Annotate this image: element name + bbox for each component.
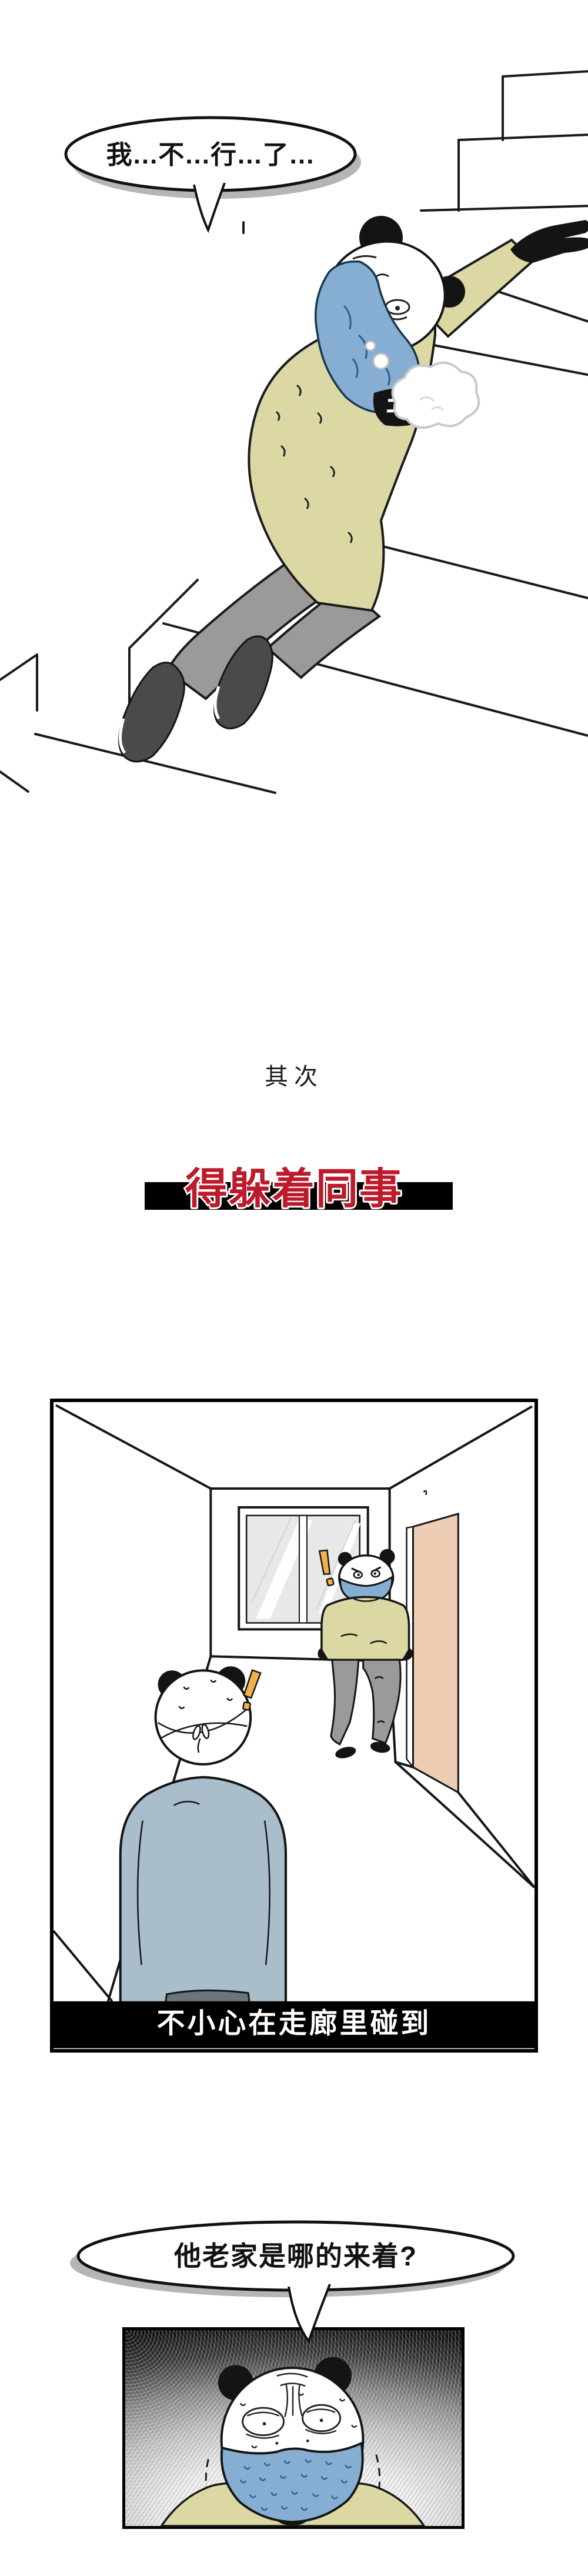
stair-tread-line	[503, 71, 588, 76]
panel-stairs: 我...不...行...了...	[0, 53, 588, 823]
floor-edge-right-long	[396, 1762, 534, 1887]
panel-hallway: 不小心在走廊里碰到	[50, 1399, 538, 2053]
speech-bubble-stairs: 我...不...行...了...	[66, 118, 361, 230]
comic-page: 我...不...行...了... 其次 得躲着同事	[0, 0, 588, 2576]
pupil-right	[320, 2418, 323, 2422]
panda-paw-up	[510, 220, 588, 263]
exclamation-dot	[326, 1578, 333, 1586]
door	[407, 1514, 459, 1793]
stair-tread-line	[459, 135, 588, 140]
pupil-left	[263, 2422, 266, 2425]
hallway-caption-text: 不小心在走廊里碰到	[157, 2008, 432, 2040]
hallway-scene: 不小心在走廊里碰到	[54, 1402, 534, 2049]
ceiling-line-left	[56, 1405, 211, 1489]
breath-puff-mid	[373, 353, 389, 369]
stair-tread-line	[421, 206, 588, 211]
bubble-stairs-text: 我...不...行...了...	[106, 141, 315, 169]
wall-squiggle	[423, 1491, 426, 1495]
ceiling-line-right	[390, 1406, 532, 1489]
sweater	[121, 1777, 286, 2003]
headline-text: 得躲着同事	[0, 1154, 588, 1216]
bubble-hometown-text: 他老家是哪的来着?	[173, 2241, 417, 2271]
exclamation-bar	[243, 1670, 260, 1699]
shoe-left	[334, 1745, 357, 1760]
stair-nose-line	[0, 772, 28, 792]
speech-bubble-hometown: 他老家是哪的来着?	[56, 2200, 544, 2364]
floor-edge-left2	[54, 1931, 112, 2001]
pants-leg-right	[363, 1660, 400, 1743]
pupil-left	[358, 1573, 360, 1576]
panda-protagonist-back	[121, 1666, 286, 2003]
stair-nose-line	[0, 655, 37, 680]
bubble-tail	[194, 183, 225, 230]
colleague-shirt	[322, 1597, 409, 1660]
section-label-secondly: 其次	[0, 1057, 588, 1092]
nostril	[275, 2442, 278, 2445]
nostril	[306, 2440, 309, 2442]
pants-leg-left	[331, 1660, 359, 1744]
stair-diagonal-line	[497, 291, 588, 322]
door-panel	[413, 1514, 459, 1793]
shoe-right	[369, 1740, 391, 1754]
exclamation-dot	[243, 1702, 250, 1710]
window-divider	[299, 1516, 307, 1623]
panda-colleague	[318, 1549, 412, 1760]
pupil-right	[395, 306, 400, 311]
breath-puff-small	[366, 341, 375, 351]
floor-edge-right	[458, 1793, 534, 1888]
pupil-right	[373, 1572, 376, 1574]
waistband	[166, 1990, 250, 2002]
bubble-tail	[289, 2284, 330, 2341]
